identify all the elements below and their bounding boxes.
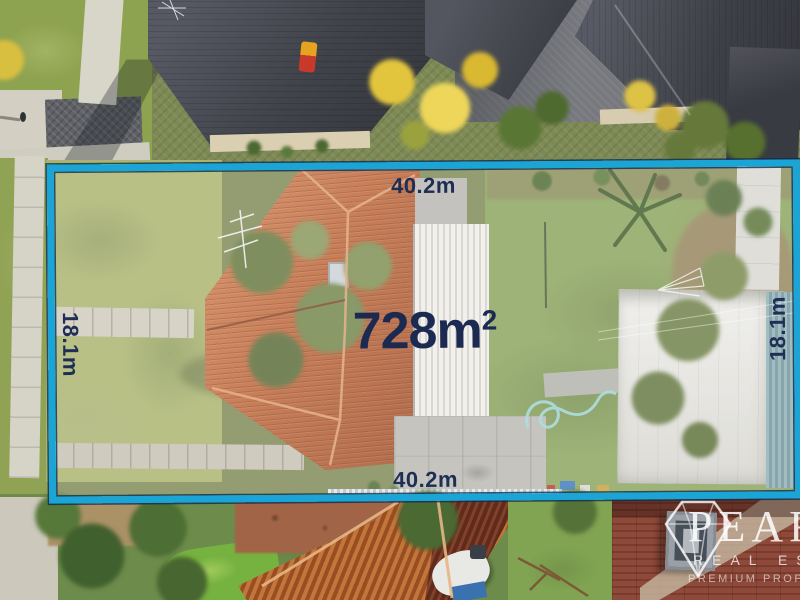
- shrubs: [232, 132, 352, 166]
- street-trees: [20, 490, 240, 600]
- area-label: 728m2: [55, 298, 794, 363]
- watermark-subtitle: REAL ESTATE: [693, 552, 800, 568]
- watermark-brand: PEARL: [688, 501, 800, 552]
- area-superscript: 2: [482, 304, 497, 335]
- person: [20, 112, 26, 122]
- sidewalk: [9, 156, 45, 478]
- dimension-label-top: 40.2m: [54, 170, 793, 201]
- agency-watermark: PEARL REAL ESTATE PREMIUM PROPERTY PEOPL…: [645, 490, 800, 600]
- watermark-tagline: PREMIUM PROPERTY PEOPLE: [688, 573, 800, 585]
- green-tree: [480, 88, 590, 168]
- property-aerial-photo: 40.2m 40.2m 18.1m 18.1m 728m2 PEARL REAL…: [0, 0, 800, 600]
- red-yellow-object: [298, 41, 317, 73]
- area-value: 728m: [352, 302, 481, 361]
- property-boundary: 40.2m 40.2m 18.1m 18.1m 728m2: [47, 159, 800, 503]
- outboard-motor: [470, 545, 486, 559]
